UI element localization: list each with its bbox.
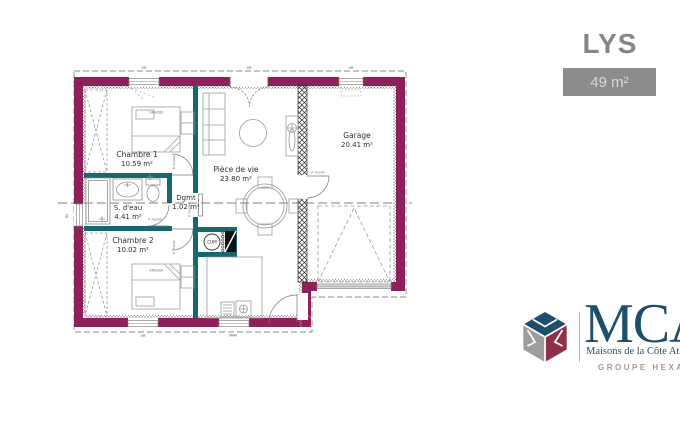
- roof-outline: [74, 71, 406, 332]
- brand-tagline: Maisons de la Côte Atlantique: [586, 346, 680, 357]
- logo-divider: [579, 312, 580, 362]
- room-label-piece-de-vie: Pièce de vie 23.80 m²: [199, 165, 273, 184]
- mca-logo-icon: [518, 309, 572, 365]
- room-label-sdeau: S. d'eau 4.41 m²: [94, 204, 162, 222]
- door-label-2: P 75/204: [172, 240, 176, 253]
- window-label-2: VR: [247, 66, 252, 70]
- area-badge-value: 49 m²: [590, 74, 628, 91]
- cum-label: CUM: [207, 239, 217, 244]
- windows: [74, 76, 391, 329]
- area-badge: 49 m²: [563, 68, 656, 96]
- brand-group-label: GROUPE HEXAOM: [598, 363, 680, 372]
- room-label-garage: Garage 20.41 m²: [320, 131, 394, 150]
- window-label-4: VR: [141, 334, 146, 338]
- left-window-label: 60: [65, 214, 69, 218]
- room-label-chambre2: Chambre 2 10.02 m²: [96, 236, 170, 255]
- room-label-dgmt: Dgmt 1.02 m²: [165, 194, 207, 212]
- model-name: LYS: [560, 28, 660, 60]
- door-label-5: P 75/204: [311, 171, 324, 175]
- room-label-chambre1: Chambre 1 10.59 m²: [100, 150, 174, 169]
- floor-plan-drawing: CUM 140x200 140x200 VR VR VR VR 9640 60 …: [52, 50, 420, 342]
- window-label-1: VR: [142, 66, 147, 70]
- bottom-dimension: 9640: [229, 334, 238, 338]
- floor-plan: CUM 140x200 140x200 VR VR VR VR 9640 60 …: [52, 50, 420, 342]
- bed2-size: 140x200: [149, 269, 163, 273]
- window-label-3: VR: [349, 66, 354, 70]
- bed1-size: 140x200: [149, 111, 163, 115]
- brand-logotype: MCA: [584, 296, 680, 352]
- floorplan-page: CUM 140x200 140x200 VR VR VR VR 9640 60 …: [0, 0, 680, 425]
